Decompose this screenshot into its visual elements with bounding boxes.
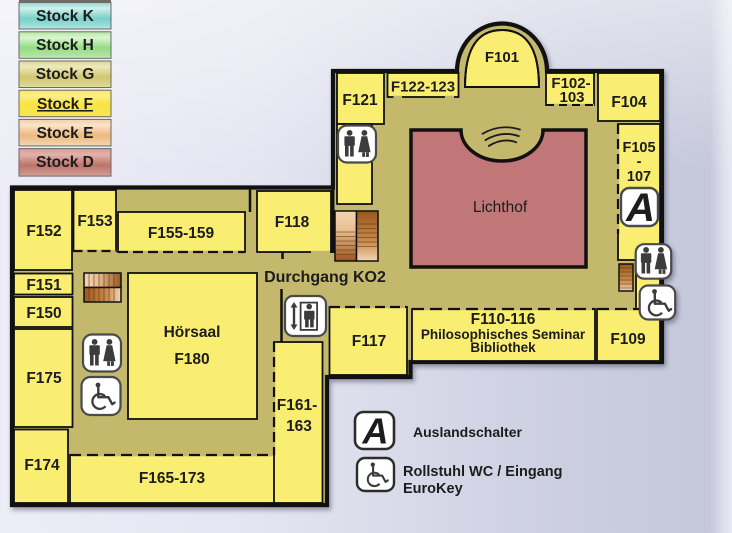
svg-text:F122-123: F122-123 — [391, 79, 455, 96]
svg-text:Lichthof: Lichthof — [473, 199, 528, 216]
svg-text:F117: F117 — [352, 333, 386, 350]
svg-text:F150: F150 — [26, 305, 61, 322]
svg-text:107: 107 — [627, 169, 651, 185]
svg-text:F175: F175 — [26, 370, 62, 387]
svg-text:F110-116: F110-116 — [471, 311, 536, 328]
svg-text:F118: F118 — [275, 214, 310, 231]
svg-text:A: A — [362, 411, 389, 452]
svg-text:F109: F109 — [610, 331, 646, 348]
svg-text:F153: F153 — [77, 213, 113, 230]
svg-text:Stock E: Stock E — [37, 125, 94, 142]
svg-text:103: 103 — [559, 89, 584, 106]
svg-text:F152: F152 — [26, 223, 61, 240]
svg-text:A: A — [625, 186, 655, 230]
svg-text:Hörsaal: Hörsaal — [164, 324, 221, 341]
svg-text:F165-173: F165-173 — [139, 470, 206, 487]
svg-text:-: - — [637, 154, 642, 170]
svg-text:Stock G: Stock G — [36, 66, 95, 83]
svg-text:F151: F151 — [26, 277, 62, 294]
svg-text:F101: F101 — [485, 49, 519, 66]
svg-text:Stock F: Stock F — [37, 96, 93, 113]
svg-text:163: 163 — [286, 418, 312, 435]
svg-text:F161-: F161- — [277, 397, 318, 414]
svg-text:Auslandschalter: Auslandschalter — [413, 424, 522, 440]
svg-text:F104: F104 — [611, 94, 647, 111]
svg-text:Durchgang KO2: Durchgang KO2 — [264, 269, 386, 286]
svg-text:F174: F174 — [24, 457, 60, 474]
svg-text:Stock H: Stock H — [36, 37, 94, 54]
svg-text:EuroKey: EuroKey — [403, 481, 463, 497]
svg-text:Bibliothek: Bibliothek — [470, 340, 536, 355]
svg-text:F121: F121 — [342, 92, 378, 109]
svg-text:F155-159: F155-159 — [148, 225, 215, 242]
svg-text:Stock D: Stock D — [36, 154, 94, 171]
svg-text:Stock K: Stock K — [36, 8, 95, 25]
svg-text:Rollstuhl WC / Eingang: Rollstuhl WC / Eingang — [403, 464, 563, 480]
svg-text:F180: F180 — [174, 351, 209, 368]
